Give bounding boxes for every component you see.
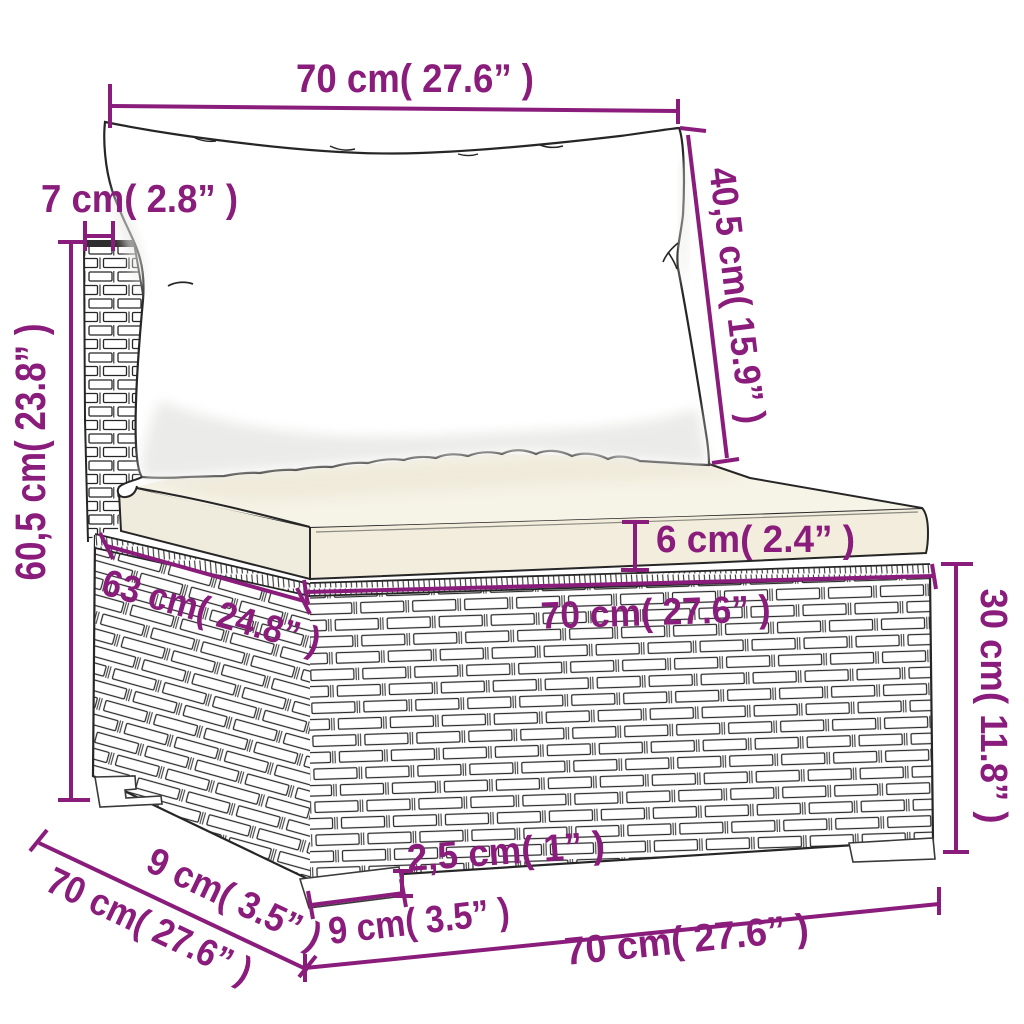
svg-text:6 cm( 2.4” ): 6 cm( 2.4” ) <box>656 519 855 561</box>
svg-text:70 cm( 27.6” ): 70 cm( 27.6” ) <box>296 57 534 101</box>
svg-text:7 cm( 2.8” ): 7 cm( 2.8” ) <box>41 178 238 221</box>
svg-text:30 cm( 11.8” ): 30 cm( 11.8” ) <box>972 589 1014 824</box>
svg-text:70 cm( 27.6” ): 70 cm( 27.6” ) <box>540 588 771 637</box>
svg-text:60,5 cm( 23.8” ): 60,5 cm( 23.8” ) <box>7 324 55 581</box>
